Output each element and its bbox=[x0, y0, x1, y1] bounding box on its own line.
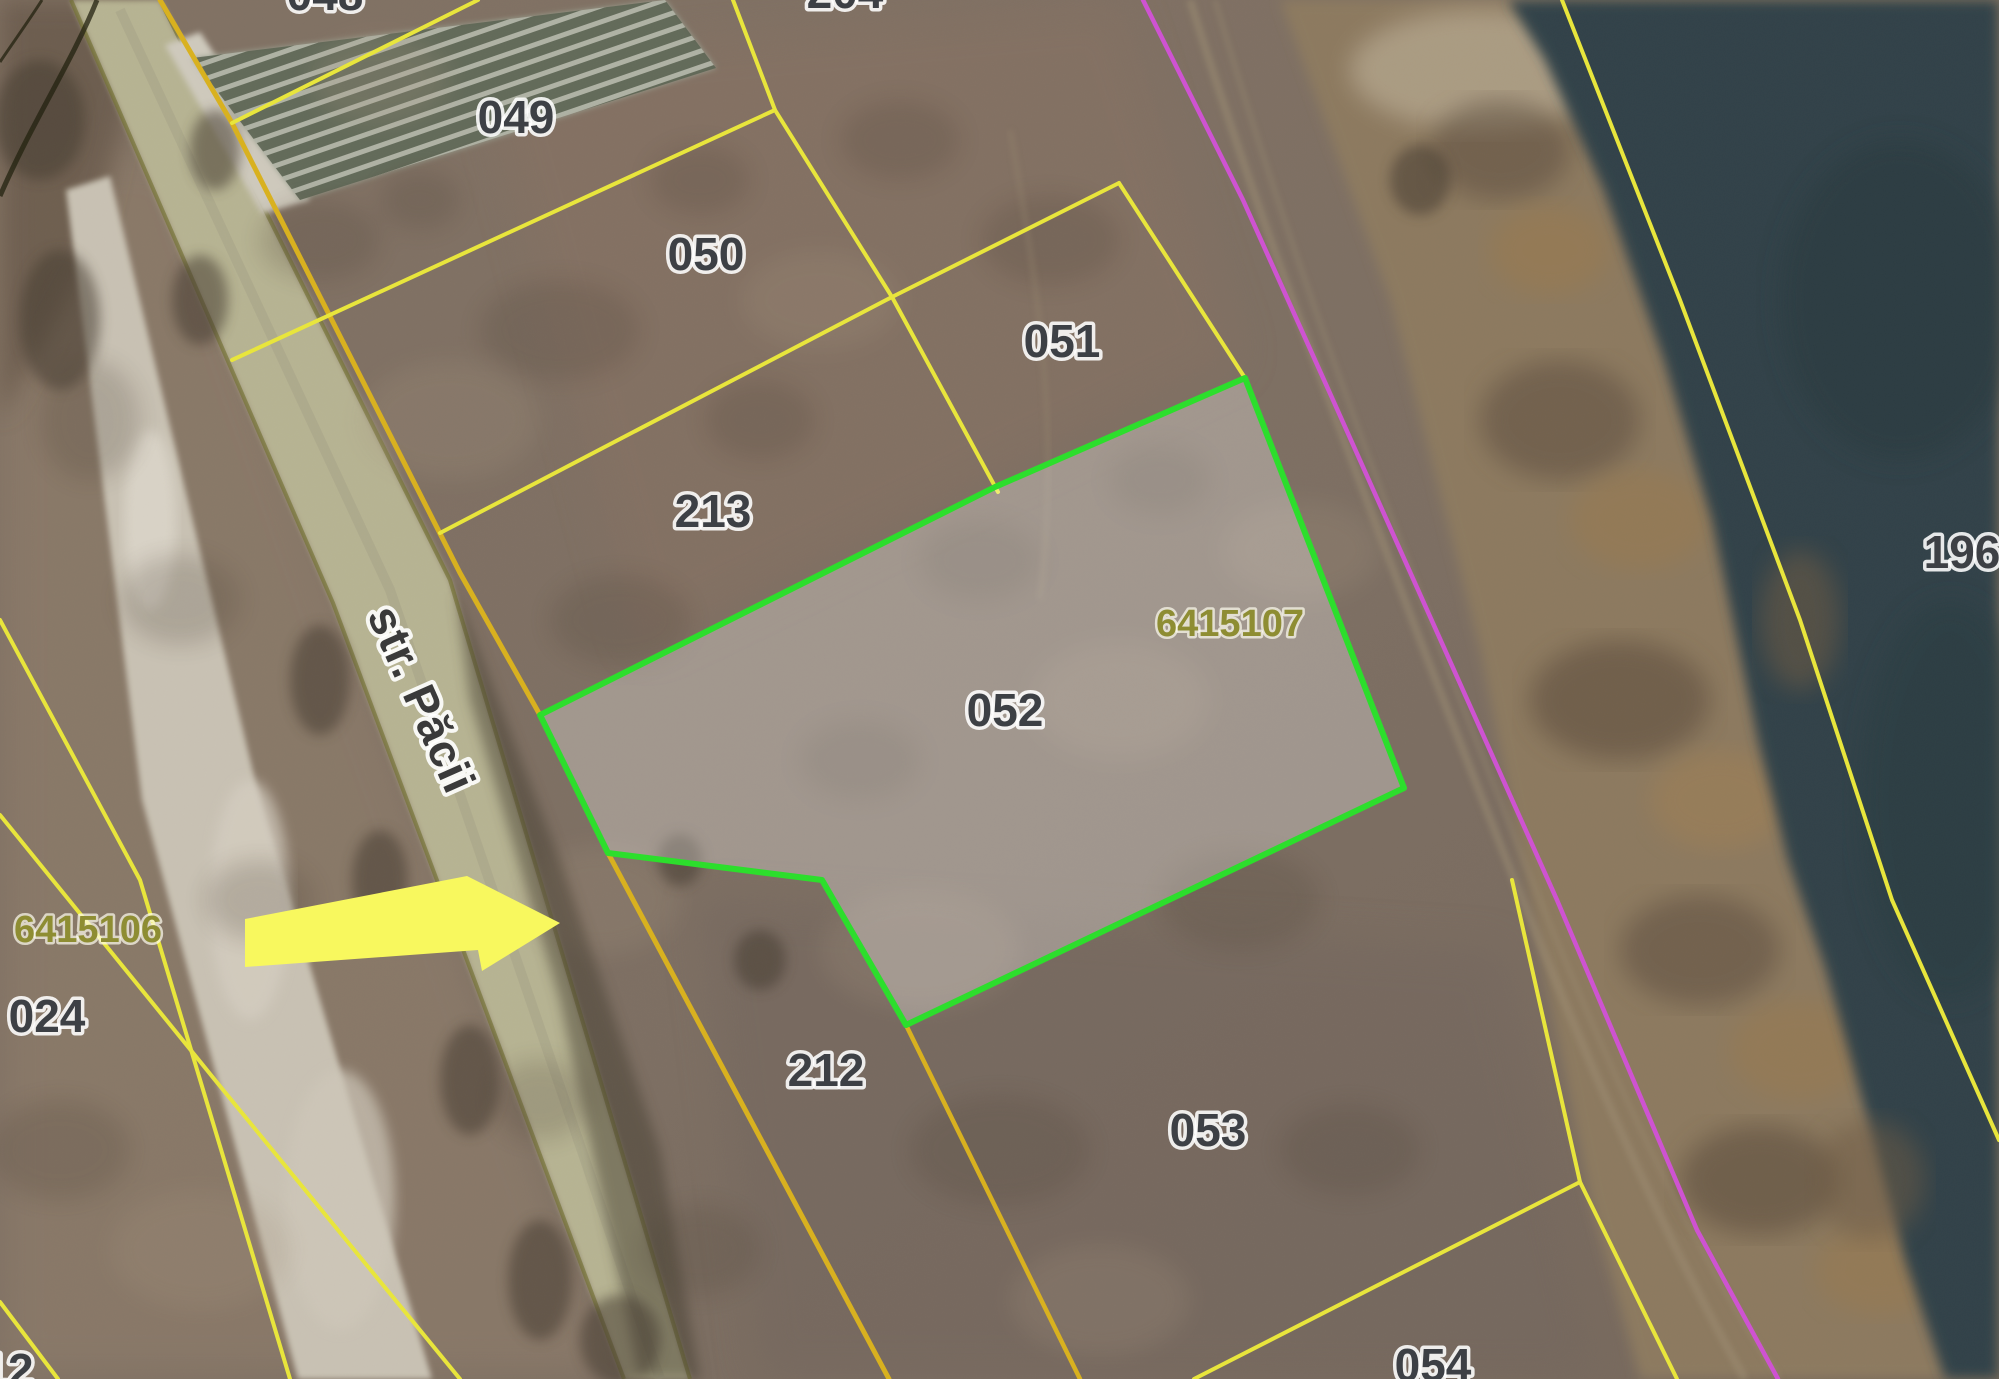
parcel-label-049: 049 bbox=[478, 91, 555, 143]
parcel-label-053: 053 bbox=[1170, 1104, 1247, 1156]
parcel-label-212: 212 bbox=[788, 1044, 865, 1096]
parcel-label-051: 051 bbox=[1024, 315, 1101, 367]
parcel-label-204: 204 bbox=[807, 0, 884, 18]
parcel-label-024: 024 bbox=[9, 990, 86, 1042]
parcel-label-196: 196 bbox=[1924, 526, 1999, 578]
parcel-label-050: 050 bbox=[668, 228, 745, 280]
cadastral-label-6415107: 6415107 bbox=[1156, 603, 1304, 645]
cadastral-map-view[interactable]: 048 204 049 050 051 213 052 6415107 196 … bbox=[0, 0, 1999, 1379]
parcel-label-052: 052 bbox=[967, 684, 1044, 736]
parcel-label-213: 213 bbox=[675, 485, 752, 537]
parcel-label-048: 048 bbox=[287, 0, 364, 20]
parcel-label-054: 054 bbox=[1395, 1339, 1472, 1379]
map-canvas[interactable]: 048 204 049 050 051 213 052 6415107 196 … bbox=[0, 0, 1999, 1379]
parcel-label-12: 12 bbox=[0, 1344, 34, 1379]
cadastral-label-6415106: 6415106 bbox=[14, 909, 162, 951]
